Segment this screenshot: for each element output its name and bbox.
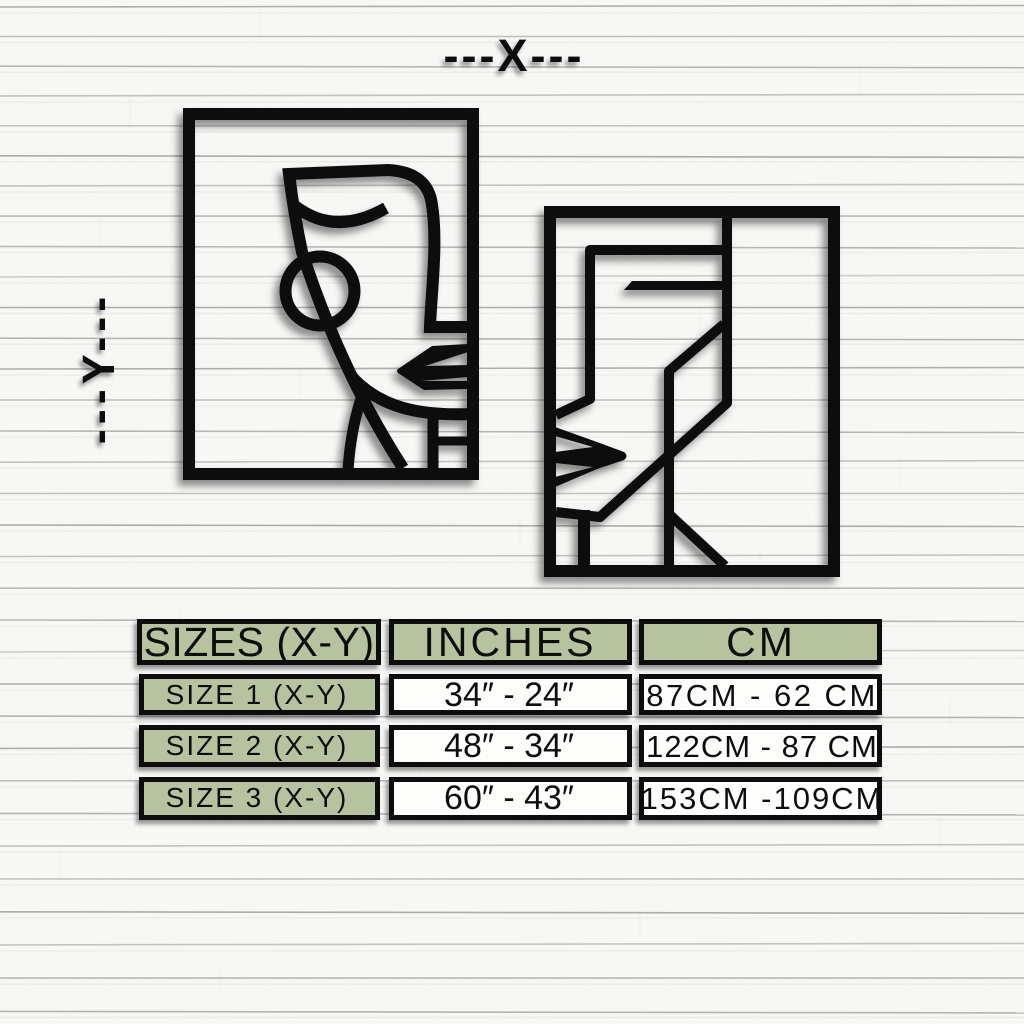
svg-text:SIZE 1 (X-Y): SIZE 1 (X-Y) [166,679,349,710]
svg-text:87CM - 62 CM: 87CM - 62 CM [646,678,878,713]
svg-text:48″ - 34″: 48″ - 34″ [444,727,574,765]
svg-text:60″ - 43″: 60″ - 43″ [444,779,574,817]
svg-text:34″ - 24″: 34″ - 24″ [444,676,574,714]
svg-text:122CM - 87 CM: 122CM - 87 CM [646,729,878,764]
svg-text:SIZE 2 (X-Y): SIZE 2 (X-Y) [166,730,349,761]
svg-text:153CM -109CM: 153CM -109CM [641,781,884,816]
svg-text:---Y---: ---Y--- [73,292,124,444]
svg-text:SIZES (X-Y): SIZES (X-Y) [143,619,374,665]
svg-text:---X---: ---X--- [444,30,585,81]
svg-text:INCHES: INCHES [424,619,597,665]
svg-text:SIZE 3 (X-Y): SIZE 3 (X-Y) [166,782,349,813]
svg-text:CM: CM [726,619,796,665]
